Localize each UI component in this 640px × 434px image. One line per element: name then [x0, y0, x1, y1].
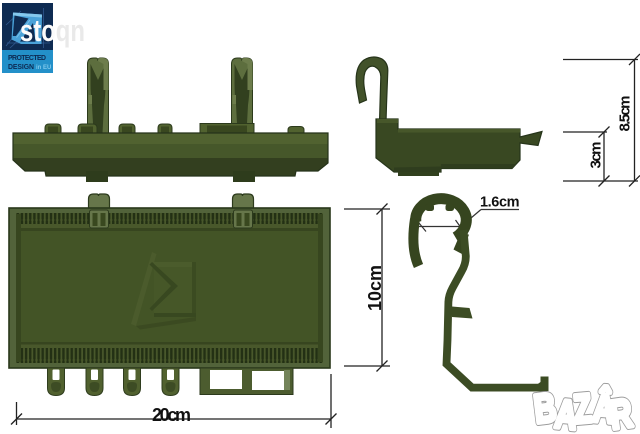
svg-text:8.5cm: 8.5cm: [617, 96, 634, 132]
svg-text:10cm: 10cm: [365, 265, 385, 311]
svg-text:20cm: 20cm: [152, 405, 191, 425]
svg-text:3cm: 3cm: [588, 142, 605, 169]
svg-text:Z: Z: [572, 386, 593, 432]
svg-text:R: R: [607, 390, 635, 434]
